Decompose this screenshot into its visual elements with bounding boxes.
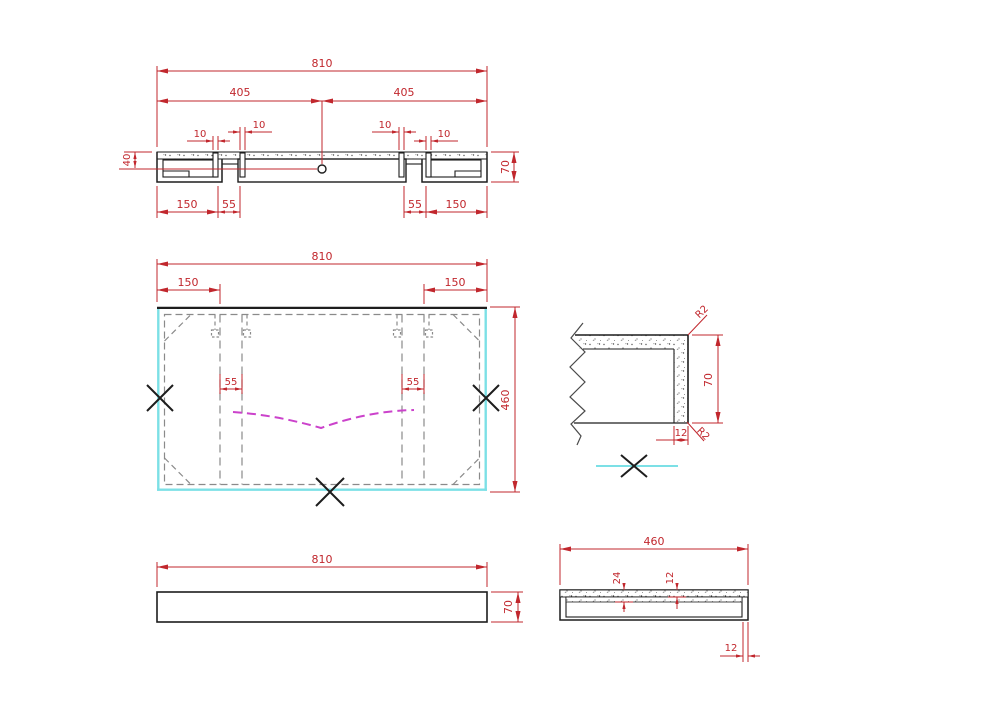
dim-label: 70 [499,160,512,174]
groove-end [212,330,219,337]
dim-label: 12 [725,643,738,654]
dim-label: 405 [230,86,251,99]
dim-label: R2 [694,304,711,321]
dim-label: 810 [312,553,333,566]
drain-hole [318,165,326,173]
x-marker-left [147,385,173,411]
groove-slot [240,153,245,177]
dim-label: 10 [379,120,392,131]
slope-curve [233,410,414,428]
front-outline [157,592,487,622]
dim-label: 12 [675,428,688,439]
groove-slot [399,153,404,177]
front-view: 810 70 [157,553,523,622]
dim-label: 55 [225,377,238,388]
x-marker-bottom [316,478,344,506]
cad-drawing-canvas: 810 405 405 10 10 10 10 40 70 150 55 55 … [0,0,1000,707]
section-dim-labels: 810 405 405 10 10 10 10 40 70 150 55 55 … [122,57,512,211]
dim-label: 405 [394,86,415,99]
dim-label: 150 [446,198,467,211]
dim-label: 150 [177,198,198,211]
dim-label: 12 [665,572,676,585]
dim-label: 55 [222,198,236,211]
dim-label: 24 [612,572,623,585]
groove-slot [213,153,218,177]
dim-label: 70 [502,600,515,614]
dim-label: 150 [445,276,466,289]
dim-label: 460 [644,535,665,548]
groove-slot [426,153,431,177]
dim-label: 460 [499,390,512,411]
corner-detail-view: R2 70 12 R2 [570,304,723,477]
plan-geometry [147,307,499,506]
dim-label: 10 [438,129,451,140]
dim-label: 150 [178,276,199,289]
corner-geometry [570,323,688,445]
x-markers [147,385,499,506]
dim-label: R2 [694,426,711,443]
side-geometry [560,590,748,620]
dim-label: 55 [408,198,422,211]
hidden-lines [165,315,480,485]
groove-end [394,330,401,337]
groove-end [244,330,251,337]
plan-dim-labels: 810 150 150 55 55 460 [178,250,513,411]
dim-label: 70 [702,373,715,387]
dim-label: 40 [122,154,133,167]
dim-label: 10 [194,129,207,140]
dim-label: 810 [312,250,333,263]
side-view: 460 24 12 12 [560,535,760,662]
technical-drawing: 810 405 405 10 10 10 10 40 70 150 55 55 … [0,0,1000,707]
plan-view: 810 150 150 55 55 460 [147,250,520,506]
dim-label: 55 [407,377,420,388]
plan-dimensions [157,259,520,492]
section-dimensions [119,66,519,218]
section-view: 810 405 405 10 10 10 10 40 70 150 55 55 … [119,57,519,218]
dim-label: 10 [253,120,266,131]
groove-end [426,330,433,337]
dim-label: 810 [312,57,333,70]
